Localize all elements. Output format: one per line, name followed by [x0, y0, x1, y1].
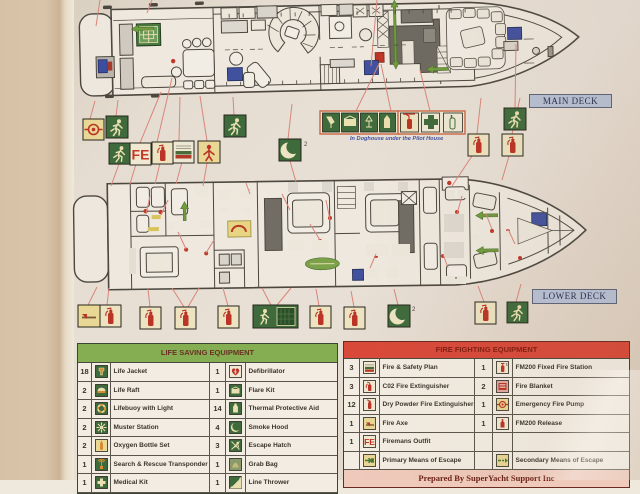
svg-text:12: 12 — [506, 363, 510, 367]
svg-text:2: 2 — [412, 307, 416, 313]
svg-text:In Doghouse under the Pilot Ho: In Doghouse under the Pilot House — [350, 136, 443, 142]
svg-text:2: 2 — [304, 142, 308, 148]
svg-text:FE: FE — [364, 437, 375, 447]
